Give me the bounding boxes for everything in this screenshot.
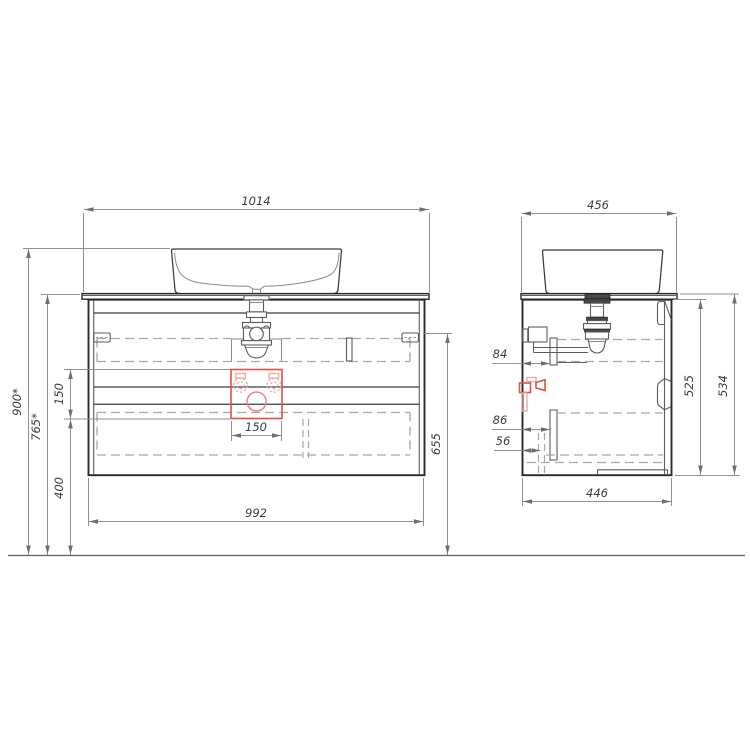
dim-text-150v: 150 — [52, 383, 66, 405]
dim-counter-height: 765* — [29, 295, 80, 556]
dim-text-86: 86 — [493, 413, 508, 427]
dim-text-446: 446 — [586, 486, 608, 500]
dim-offset-pipe: 84 — [492, 347, 550, 366]
dim-text-992: 992 — [245, 506, 267, 520]
dim-text-84: 84 — [493, 347, 508, 361]
siphon-side — [584, 299, 611, 353]
valve-right — [267, 374, 281, 393]
dim-mount-height: 655 — [424, 334, 452, 556]
dim-cabinet-height-side: 525 — [674, 300, 740, 476]
dim-cabinet-width: 992 — [89, 478, 424, 526]
dim-cabinet-depth: 446 — [523, 478, 672, 506]
dim-text-900: 900* — [10, 388, 24, 416]
dim-recess-height: 150 — [52, 370, 230, 556]
drain-hole — [247, 392, 266, 411]
dim-text-525: 525 — [682, 375, 696, 397]
dim-offset-bracket: 56 — [494, 434, 541, 453]
dim-text-534: 534 — [716, 375, 730, 397]
mount-bracket-left — [94, 333, 111, 342]
dim-text-56: 56 — [496, 434, 511, 448]
dim-recess-width: 150 — [232, 420, 282, 441]
dim-text-150h: 150 — [245, 420, 267, 434]
dimensions: 1014 456 992 446 — [10, 194, 740, 555]
dim-text-1014: 1014 — [241, 194, 270, 208]
valve-left — [234, 374, 248, 393]
dim-under-clearance: 400 — [52, 419, 73, 554]
dim-text-655: 655 — [429, 433, 443, 455]
vessel-sink-front — [172, 249, 342, 294]
dim-text-765: 765* — [29, 413, 43, 441]
connection-zone — [231, 370, 282, 419]
dim-text-400: 400 — [52, 477, 66, 499]
technical-drawing-page: 1014 456 992 446 — [0, 0, 750, 750]
dim-text-456: 456 — [587, 198, 609, 212]
vanity-technical-drawing: 1014 456 992 446 — [0, 0, 750, 750]
dim-counter-width: 1014 — [84, 194, 430, 292]
countertop-side — [521, 294, 677, 300]
siphon-front — [242, 296, 272, 358]
front-view — [82, 249, 429, 475]
dim-offset-drawer: 86 — [492, 413, 550, 432]
vessel-sink-side — [543, 250, 663, 294]
